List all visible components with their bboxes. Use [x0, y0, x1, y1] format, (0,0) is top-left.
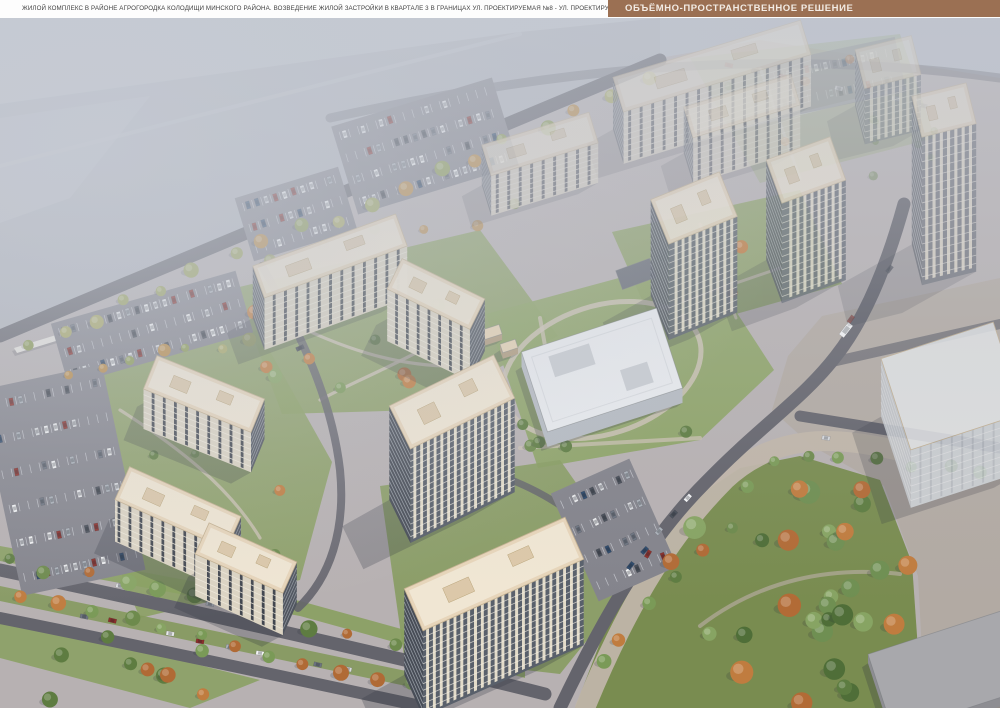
scene-root — [0, 18, 1000, 708]
haze — [0, 18, 1000, 708]
section-banner: ОБЪЁМНО-ПРОСТРАНСТВЕННОЕ РЕШЕНИЕ — [608, 0, 1000, 17]
section-banner-label: ОБЪЁМНО-ПРОСТРАНСТВЕННОЕ РЕШЕНИЕ — [625, 3, 853, 14]
site-plan-rendering — [0, 18, 1000, 708]
presentation-board: ЖИЛОЙ КОМПЛЕКС В РАЙОНЕ АГРОГОРОДКА КОЛО… — [0, 0, 1000, 708]
title-bar: ЖИЛОЙ КОМПЛЕКС В РАЙОНЕ АГРОГОРОДКА КОЛО… — [0, 0, 1000, 18]
